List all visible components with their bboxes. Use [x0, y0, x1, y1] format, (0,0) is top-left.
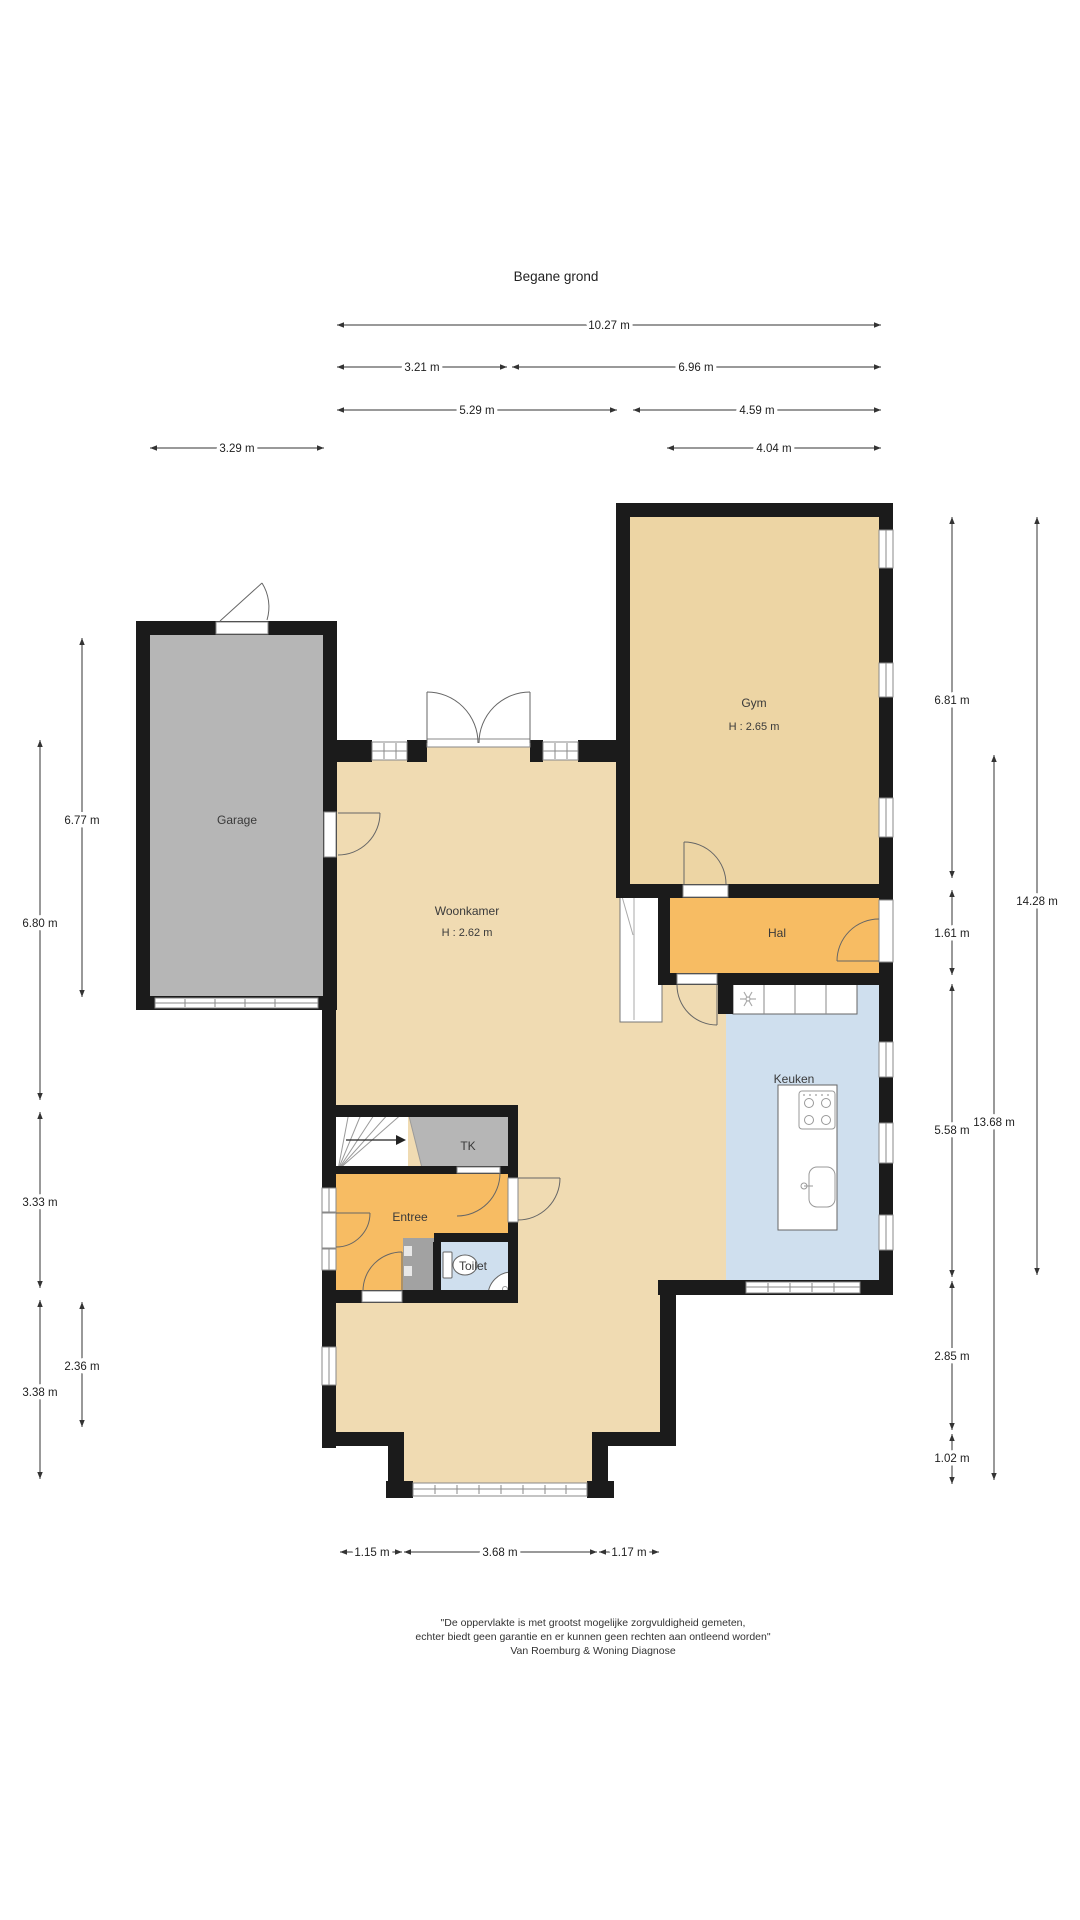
- room-woonkamer-label: Woonkamer: [435, 904, 499, 918]
- room-keuken-label: Keuken: [774, 1072, 815, 1086]
- french-doors: [427, 692, 530, 743]
- room-tk-label: TK: [460, 1139, 475, 1153]
- meter-cabinet-slot: [404, 1266, 412, 1276]
- garage-door: [216, 622, 268, 634]
- hal-inner-door: [677, 974, 717, 984]
- disclaimer-text: "De oppervlakte is met grootst mogelijke…: [415, 1617, 770, 1657]
- tk-door: [457, 1167, 500, 1173]
- dim-top-keuken: 4.04 m: [756, 443, 791, 455]
- dim-right-bay: 1.02 m: [934, 1453, 969, 1465]
- gym-door: [683, 885, 728, 897]
- dim-left-garage: 6.77 m: [64, 815, 99, 827]
- dim-right-lower: 2.85 m: [934, 1351, 969, 1363]
- dim-right-gym: 6.81 m: [934, 695, 969, 707]
- disclaimer-line-2: echter biedt geen garantie en er kunnen …: [415, 1631, 770, 1643]
- dim-bottom-mid: 3.68 m: [482, 1547, 517, 1559]
- hal-door: [879, 900, 893, 962]
- dim-top-row2-right: 6.96 m: [678, 362, 713, 374]
- disclaimer-line-1: "De oppervlakte is met grootst mogelijke…: [441, 1617, 746, 1629]
- floorplan-svg: Begane grond: [0, 0, 1080, 1920]
- dim-top-row3-left: 5.29 m: [459, 405, 494, 417]
- dim-top-row2-left: 3.21 m: [404, 362, 439, 374]
- dim-left-upper: 6.80 m: [22, 918, 57, 930]
- entree-bottom-door: [362, 1291, 402, 1302]
- dim-bottom-left: 1.15 m: [354, 1547, 389, 1559]
- front-door: [322, 1213, 336, 1248]
- dim-right-hal: 1.61 m: [934, 928, 969, 940]
- dim-left-mid: 3.33 m: [22, 1197, 57, 1209]
- disclaimer-line-3: Van Roemburg & Woning Diagnose: [510, 1645, 676, 1657]
- dim-right-inner-total: 13.68 m: [973, 1117, 1015, 1129]
- room-hal-label: Hal: [768, 926, 786, 940]
- room-gym-label: Gym: [741, 696, 766, 710]
- room-garage-label: Garage: [217, 813, 257, 827]
- floorplan-page: Begane grond: [0, 0, 1080, 1920]
- dim-top-total: 10.27 m: [588, 320, 630, 332]
- room-gym-height: H : 2.65 m: [729, 721, 780, 733]
- dim-top-row3-right: 4.59 m: [739, 405, 774, 417]
- dim-left-inner: 2.36 m: [64, 1361, 99, 1373]
- dim-right-keuken: 5.58 m: [934, 1125, 969, 1137]
- dim-left-lower: 3.38 m: [22, 1387, 57, 1399]
- page-title: Begane grond: [514, 269, 599, 284]
- dim-bottom-right: 1.17 m: [611, 1547, 646, 1559]
- room-woonkamer-height: H : 2.62 m: [442, 927, 493, 939]
- room-entree-label: Entree: [392, 1210, 428, 1224]
- dim-top-garage: 3.29 m: [219, 443, 254, 455]
- dim-right-outer-total: 14.28 m: [1016, 896, 1058, 908]
- garage-inner-door: [324, 812, 336, 857]
- room-toilet-label: Toilet: [459, 1259, 488, 1273]
- closet: [620, 890, 662, 1022]
- entree-inner-door: [508, 1178, 518, 1222]
- meter-cabinet-slot: [404, 1246, 412, 1256]
